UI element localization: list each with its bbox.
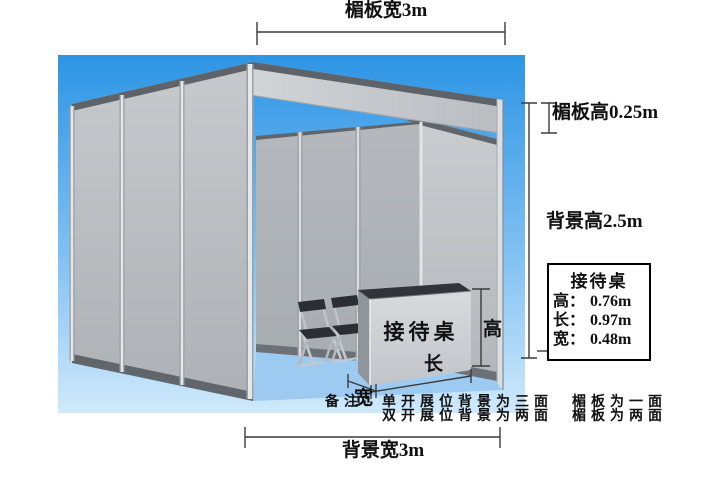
fascia-height-label: 楣板高0.25m [552, 103, 658, 123]
desk-spec-row-length: 长：0.97m [549, 311, 649, 330]
desk-height-label: 高 [483, 320, 502, 340]
left-wall [72, 62, 253, 401]
backwall-width-label: 背景宽3m [283, 441, 483, 461]
desk-front-label: 接待桌 [372, 321, 470, 343]
remarks: 备注：单开展位背景为三面 楣板为一面 双开展位背景为两面 楣板为两面 [325, 396, 667, 423]
backwall-height-label: 背景高2.5m [546, 212, 643, 232]
desk-spec-row-width: 宽：0.48m [549, 330, 649, 349]
fascia-width-dimension-line [257, 22, 505, 45]
desk-length-label: 长 [424, 355, 443, 375]
desk-spec-box: 接待桌 高：0.76m 长：0.97m 宽：0.48m [547, 263, 651, 361]
remark-line-2: 双开展位背景为两面 楣板为两面 [325, 410, 667, 424]
desk-spec-title: 接待桌 [549, 267, 649, 292]
remark-line-1: 备注：单开展位背景为三面 楣板为一面 [325, 396, 667, 410]
booth-diagram: 楣板宽3m 楣板高0.25m 背景高2.5m 接待桌 高 长 宽 背景宽3m 接… [0, 0, 712, 494]
right-corner-post [497, 99, 503, 390]
desk-spec-row-height: 高：0.76m [549, 292, 649, 311]
fascia-width-label: 楣板宽3m [286, 1, 486, 21]
